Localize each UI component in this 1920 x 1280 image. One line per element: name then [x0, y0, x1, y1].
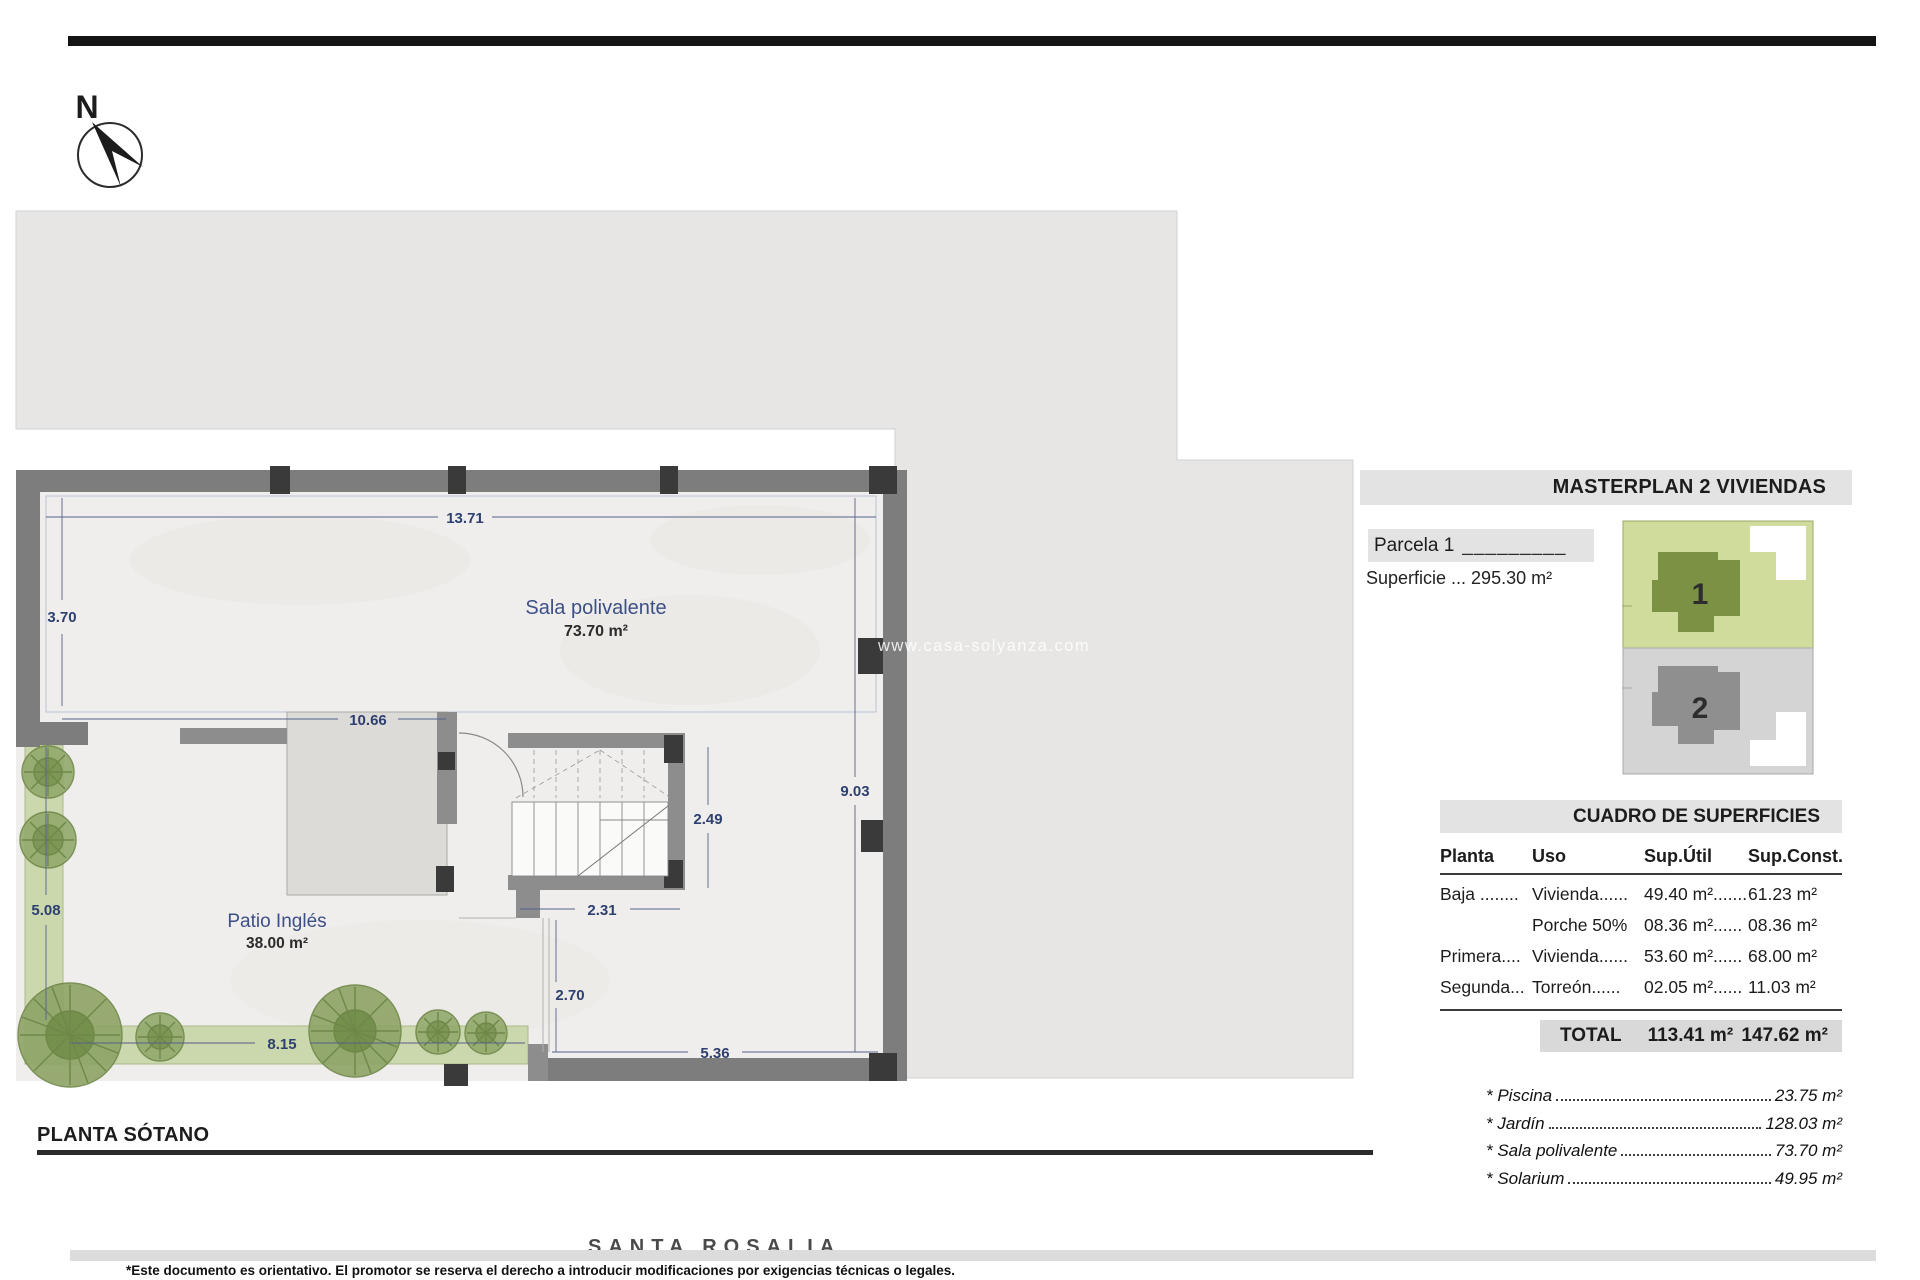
cell-uso: Vivienda......	[1532, 879, 1644, 910]
bottom-divider	[70, 1250, 1876, 1261]
dotted-leader	[1549, 1127, 1762, 1129]
dim-stair-height: 2.49	[693, 811, 722, 828]
extra-value: 49.95 m²	[1775, 1169, 1842, 1189]
list-item: * Sala polivalente 73.70 m²	[1486, 1141, 1842, 1169]
project-name-clipped: SANTA ROSALIA	[588, 1236, 848, 1250]
list-item: * Piscina 23.75 m²	[1486, 1086, 1842, 1114]
cell-util: 08.36 m²......	[1644, 910, 1748, 941]
cell-util: 49.40 m².......	[1644, 879, 1748, 910]
watermark: www.casa-solyanza.com	[877, 637, 1090, 655]
col-uso: Uso	[1532, 846, 1644, 867]
list-item: * Solarium 49.95 m²	[1486, 1169, 1842, 1197]
cell-const: 11.03 m²	[1748, 972, 1842, 1003]
footer-disclaimer: *Este documento es orientativo. El promo…	[126, 1263, 955, 1278]
surfaces-table: Planta Uso Sup.Útil Sup.Const. Baja ....…	[1440, 846, 1842, 1011]
table-row: Porche 50% 08.36 m²...... 08.36 m²	[1440, 910, 1842, 941]
surfaces-header: CUADRO DE SUPERFICIES	[1440, 800, 1842, 833]
surfaces-table-header: Planta Uso Sup.Útil Sup.Const.	[1440, 846, 1842, 875]
cell-planta: Baja ........	[1440, 879, 1532, 910]
masterplan-title: MASTERPLAN 2 VIVIENDAS	[1553, 476, 1826, 499]
dim-top: 13.71	[446, 510, 484, 527]
table-row: Primera.... Vivienda...... 53.60 m².....…	[1440, 941, 1842, 972]
dim-stair-width: 2.31	[587, 902, 616, 919]
list-item: * Jardín 128.03 m²	[1486, 1114, 1842, 1142]
north-arrow-icon: N	[75, 89, 143, 187]
storage-room	[287, 712, 447, 895]
sala-area: 73.70 m²	[564, 623, 628, 640]
col-planta: Planta	[1440, 846, 1532, 867]
extra-value: 128.03 m²	[1765, 1114, 1842, 1134]
cell-planta: Segunda...	[1440, 972, 1532, 1003]
total-bar: TOTAL 113.41 m² 147.62 m²	[1540, 1020, 1842, 1052]
extra-name: * Jardín	[1486, 1114, 1545, 1134]
col-sup-util: Sup.Útil	[1644, 846, 1748, 867]
dim-garden-bottom: 8.15	[267, 1036, 296, 1053]
minimap-plot-2-label: 2	[1692, 692, 1709, 725]
patio-name: Patio Inglés	[227, 911, 326, 932]
minimap-plot-1-label: 1	[1692, 578, 1709, 611]
surfaces-table-body: Baja ........ Vivienda...... 49.40 m²...…	[1440, 875, 1842, 1011]
north-label: N	[75, 89, 98, 125]
extra-value: 73.70 m²	[1775, 1141, 1842, 1161]
table-row: Segunda... Torreón...... 02.05 m²...... …	[1440, 972, 1842, 1003]
title-underline	[37, 1150, 1373, 1155]
extra-name: * Piscina	[1486, 1086, 1552, 1106]
dim-garden-left: 5.08	[31, 902, 60, 919]
cell-planta: Primera....	[1440, 941, 1532, 972]
dotted-leader	[1621, 1154, 1771, 1156]
extra-name: * Solarium	[1486, 1169, 1564, 1189]
cell-const: 68.00 m²	[1748, 941, 1842, 972]
cell-planta	[1440, 910, 1532, 941]
masterplan-minimap: 1 2	[1622, 520, 1814, 776]
total-label: TOTAL	[1560, 1025, 1622, 1047]
table-row: Baja ........ Vivienda...... 49.40 m²...…	[1440, 879, 1842, 910]
parcel-label: Parcela 1	[1374, 535, 1454, 557]
dim-left-upper: 3.70	[47, 609, 76, 626]
parcel-superficie: Superficie ... 295.30 m²	[1366, 568, 1552, 589]
sala-name: Sala polivalente	[525, 597, 666, 619]
parcel-label-bar: Parcela 1 _________	[1368, 529, 1594, 562]
total-util: 113.41 m²	[1648, 1025, 1734, 1047]
cell-util: 02.05 m²......	[1644, 972, 1748, 1003]
cell-const: 61.23 m²	[1748, 879, 1842, 910]
dim-bottom-right: 5.36	[700, 1045, 729, 1062]
cell-uso: Vivienda......	[1532, 941, 1644, 972]
dim-hall: 10.66	[349, 712, 387, 729]
cell-uso: Porche 50%	[1532, 910, 1644, 941]
dim-right: 9.03	[840, 783, 869, 800]
cell-uso: Torreón......	[1532, 972, 1644, 1003]
page-title: PLANTA SÓTANO	[37, 1124, 209, 1147]
extras-list: * Piscina 23.75 m² * Jardín 128.03 m² * …	[1486, 1086, 1842, 1196]
total-const: 147.62 m²	[1741, 1025, 1828, 1047]
col-sup-const: Sup.Const.	[1748, 846, 1842, 867]
extra-value: 23.75 m²	[1775, 1086, 1842, 1106]
patio-area: 38.00 m²	[246, 935, 308, 952]
plan-sheet: N	[0, 0, 1920, 1280]
masterplan-header: MASTERPLAN 2 VIVIENDAS	[1360, 470, 1852, 505]
surfaces-title: CUADRO DE SUPERFICIES	[1573, 806, 1820, 828]
project-name: SANTA ROSALIA	[588, 1236, 841, 1250]
cell-util: 53.60 m²......	[1644, 941, 1748, 972]
parcel-rule: _________	[1462, 535, 1566, 557]
cell-const: 08.36 m²	[1748, 910, 1842, 941]
dim-passage: 2.70	[555, 987, 584, 1004]
dotted-leader	[1568, 1182, 1770, 1184]
extra-name: * Sala polivalente	[1486, 1141, 1617, 1161]
dotted-leader	[1556, 1099, 1771, 1101]
